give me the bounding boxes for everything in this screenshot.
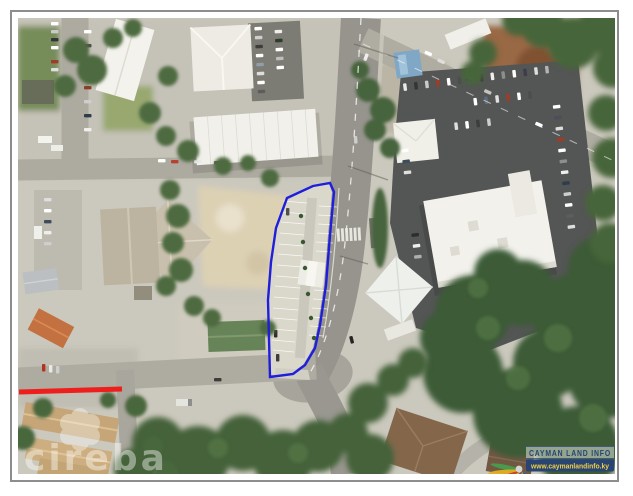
aerial-photo-scene: cireba CAYMAN LAND INFO [18, 18, 615, 474]
aerial-photo: cireba CAYMAN LAND INFO [18, 18, 615, 474]
photo-tint [18, 18, 615, 474]
aerial-map-page: cireba CAYMAN LAND INFO [0, 0, 633, 496]
